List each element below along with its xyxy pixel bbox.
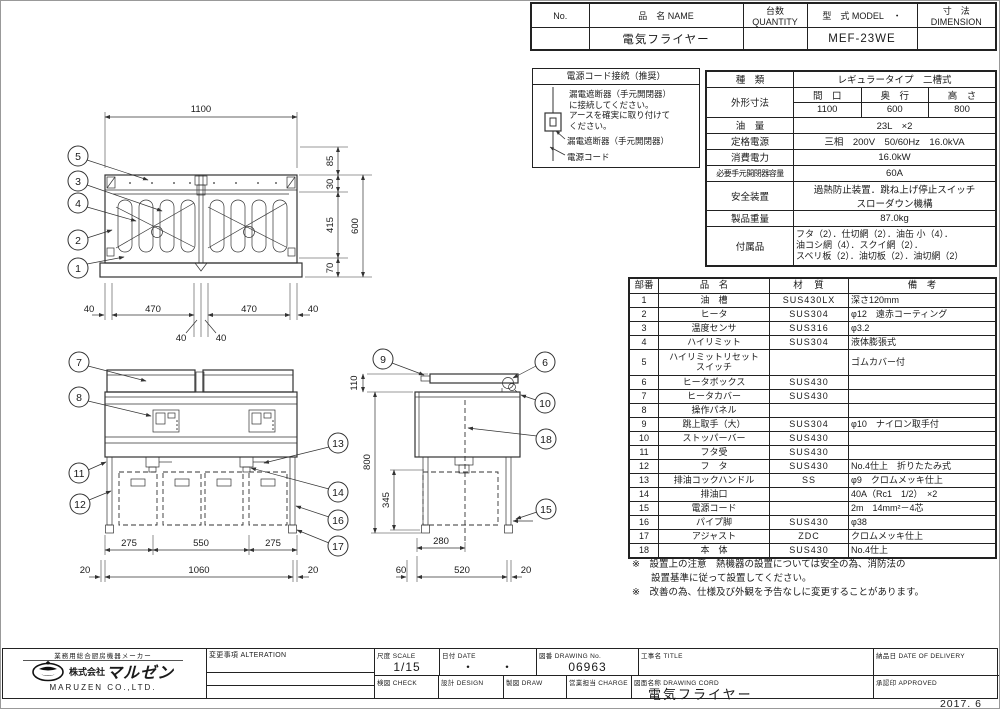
delivery-label: 納品日 DATE OF DELIVERY <box>876 650 965 660</box>
parts-header-remarks: 備 考 <box>849 278 997 294</box>
check-label: 検図 CHECK <box>377 677 417 687</box>
plan-dim-40a: 40 <box>84 304 95 315</box>
svg-text:8: 8 <box>76 392 82 404</box>
product-model: MEF-23WE <box>807 28 917 51</box>
balloon-16: 16 <box>296 506 348 530</box>
plan-dim-85: 85 <box>325 156 336 167</box>
front-dim-20a: 20 <box>80 565 91 576</box>
scale-cell: 尺度 SCALE 1/15 <box>374 649 439 675</box>
plan-dim-415: 415 <box>325 217 336 233</box>
project-title-cell: 工事名 TITLE <box>638 649 873 675</box>
header-col-model: 型 式 MODEL ・ <box>807 3 917 28</box>
charge-label: 営業担当 CHARGE <box>569 677 628 687</box>
approved-label: 承認印 APPROVED <box>876 677 937 687</box>
parts-row-11: 11フタ受SUS430 <box>629 446 996 460</box>
svg-text:4: 4 <box>75 198 81 210</box>
power-cord-title: 電源コード接続（推奨） <box>533 69 699 85</box>
parts-row-14: 14排油口40A（Rc1 1/2） ×2 <box>629 488 996 502</box>
svg-text:18: 18 <box>540 434 552 446</box>
svg-text:17: 17 <box>332 541 344 553</box>
date-value: ・ ・ <box>440 658 536 675</box>
alteration-label: 変更事項 ALTERATION <box>209 650 286 660</box>
plan-dim-70: 70 <box>325 263 336 274</box>
spec-consumption-value: 16.0kW <box>794 149 997 165</box>
company-name-jp: マルゼン <box>106 659 174 683</box>
installation-notes: ※ 設置上の注意 熱機器の設置については安全の為、消防法の 設置基準に従って設置… <box>632 558 997 599</box>
spec-oil-value: 23L ×2 <box>794 117 997 133</box>
spec-dims-col-height: 高 さ <box>929 87 997 102</box>
product-dim <box>917 28 996 51</box>
draw-label: 製図 DRAW <box>506 677 543 687</box>
product-no <box>531 28 589 51</box>
maruzen-logo-icon <box>31 660 65 682</box>
spec-breaker-value: 60A <box>794 165 997 181</box>
balloon-1: 1 <box>68 257 124 278</box>
product-name: 電気フライヤー <box>589 28 743 51</box>
plan-dim-40d: 40 <box>216 333 227 344</box>
spec-dims-col-depth: 奥 行 <box>861 87 929 102</box>
header-col-no: No. <box>531 3 589 28</box>
parts-header-material: 材 質 <box>770 278 849 294</box>
side-dim-110: 110 <box>349 375 360 390</box>
spec-dims-label: 外形寸法 <box>706 87 794 117</box>
balloon-17: 17 <box>297 530 348 556</box>
company-kk: 株式会社 <box>69 665 105 678</box>
alteration-line <box>207 673 374 686</box>
charge-cell: 営業担当 CHARGE <box>566 675 631 698</box>
parts-header-no: 部番 <box>629 278 659 294</box>
balloon-14: 14 <box>251 468 348 502</box>
balloon-8: 8 <box>69 387 151 416</box>
drawing-name-cell: 図面名称 DRAWING CORD 電気フライヤー <box>631 675 873 698</box>
company-name-en: MARUZEN CO.,LTD. <box>3 683 203 692</box>
front-dim-275a: 275 <box>121 538 137 549</box>
note-installation: ※ 設置上の注意 熱機器の設置については安全の為、消防法の 設置基準に従って設置… <box>632 558 997 586</box>
header-col-name: 品 名 NAME <box>589 3 743 28</box>
balloon-12: 12 <box>70 491 111 514</box>
side-dim-520: 520 <box>454 565 470 576</box>
oil-cans-dashed <box>119 472 287 525</box>
approved-cell: 承認印 APPROVED <box>873 675 999 698</box>
parts-row-8: 8操作パネル <box>629 404 996 418</box>
side-view: 110 800 345 280 60 520 20 9 6 <box>349 349 556 582</box>
spec-accessories-label: 付属品 <box>706 226 794 266</box>
svg-text:9: 9 <box>380 354 386 366</box>
parts-row-9: 9跳上取手（大）SUS304φ10 ナイロン取手付 <box>629 418 996 432</box>
svg-text:2: 2 <box>75 235 81 247</box>
drawing-name-value: 電気フライヤー <box>648 684 753 703</box>
design-label: 設計 DESIGN <box>441 677 483 687</box>
date-cell: 日付 DATE ・ ・ <box>439 649 536 675</box>
front-dim-1060: 1060 <box>188 565 209 576</box>
company-block: 業務用総合厨房機器メーカー 株式会社 マルゼン MARUZEN CO.,LTD. <box>3 649 206 697</box>
front-dim-275b: 275 <box>265 538 281 549</box>
front-view: 275 550 275 20 1060 20 7 8 11 12 <box>69 352 348 582</box>
parts-row-7: 7ヒータカバーSUS430 <box>629 390 996 404</box>
spec-consumption-label: 消費電力 <box>706 149 794 165</box>
control-panel-right <box>249 410 275 432</box>
parts-row-4: 4ハイリミットSUS304液体膨張式 <box>629 336 996 350</box>
balloon-13: 13 <box>264 433 348 463</box>
scale-value: 1/15 <box>375 658 439 675</box>
spec-weight-label: 製品重量 <box>706 210 794 226</box>
heater-coils-right <box>208 200 287 252</box>
spec-dims-val-depth: 600 <box>861 102 929 117</box>
plan-dim-40c: 40 <box>176 333 187 344</box>
svg-text:10: 10 <box>539 398 551 410</box>
parts-row-10: 10ストッパーバーSUS430 <box>629 432 996 446</box>
parts-header-name: 品 名 <box>659 278 770 294</box>
plan-dim-470a: 470 <box>145 304 161 315</box>
svg-text:16: 16 <box>332 515 344 527</box>
side-dim-60: 60 <box>396 565 407 576</box>
side-dim-800: 800 <box>362 454 373 470</box>
balloon-18: 18 <box>468 428 556 449</box>
spec-type-label: 種 類 <box>706 71 794 87</box>
parts-row-12: 12フ タSUS430No.4仕上 折りたたみ式 <box>629 460 996 474</box>
spec-oil-label: 油 量 <box>706 117 794 133</box>
svg-text:7: 7 <box>76 357 82 369</box>
spec-power-value: 三相 200V 50/60Hz 16.0kVA <box>794 133 997 149</box>
cord-label: 電源コード <box>567 151 610 163</box>
balloon-10: 10 <box>521 393 555 413</box>
spec-breaker-label: 必要手元開閉器容量 <box>706 165 794 181</box>
balloon-11: 11 <box>69 462 106 483</box>
balloon-6: 6 <box>513 352 555 378</box>
front-dim-550: 550 <box>193 538 209 549</box>
spec-dims-val-height: 800 <box>929 102 997 117</box>
spec-weight-value: 87.0kg <box>794 210 997 226</box>
plan-view: 1100 85 30 415 70 600 40 470 470 40 <box>68 104 372 344</box>
breaker-icon <box>539 87 569 165</box>
svg-text:15: 15 <box>540 504 552 516</box>
design-cell: 設計 DESIGN <box>438 675 503 698</box>
control-panel-left <box>153 410 179 432</box>
balloon-9: 9 <box>373 349 424 375</box>
parts-row-6: 6ヒータボックスSUS430 <box>629 376 996 390</box>
svg-text:14: 14 <box>332 487 344 499</box>
svg-text:3: 3 <box>75 176 81 188</box>
power-cord-instruction: 漏電遮断器（手元開閉器） に接続してください。 アースを確実に取り付けて くださ… <box>569 89 671 132</box>
svg-text:11: 11 <box>74 468 85 480</box>
svg-text:13: 13 <box>332 438 344 450</box>
parts-row-16: 16パイプ脚SUS430φ38 <box>629 516 996 530</box>
balloon-15: 15 <box>516 499 556 519</box>
svg-text:1: 1 <box>75 263 81 275</box>
plan-dim-width: 1100 <box>191 104 211 115</box>
spec-power-label: 定格電源 <box>706 133 794 149</box>
parts-row-2: 2ヒータSUS304φ12 遠赤コーティング <box>629 308 996 322</box>
plan-dim-40b: 40 <box>308 304 319 315</box>
spec-dims-col-width: 間 口 <box>794 87 862 102</box>
draw-cell: 製図 DRAW <box>503 675 566 698</box>
drawing-no-cell: 図番 DRAWING No. 06963 <box>536 649 638 675</box>
note-改善: ※ 改善の為、仕様及び外観を予告なしに変更することがあります。 <box>632 586 997 600</box>
power-cord-box: 電源コード接続（推奨） 漏電遮断器（手元開閉器） に接続してください。 アースを… <box>532 68 700 168</box>
balloon-4: 4 <box>68 193 136 221</box>
spec-safety-value: 過熱防止装置．跳ね上げ停止スイッチ スローダウン機構 <box>794 181 997 210</box>
plan-dim-600: 600 <box>350 218 361 234</box>
product-qty <box>743 28 807 51</box>
front-dim-20b: 20 <box>308 565 319 576</box>
delivery-cell: 納品日 DATE OF DELIVERY <box>873 649 999 675</box>
header-col-dim: 寸 法 DIMENSION <box>917 3 996 28</box>
project-title-label: 工事名 TITLE <box>641 650 683 660</box>
breaker-label: 漏電遮断器（手元開閉器） <box>567 135 669 147</box>
spec-dims-val-width: 1100 <box>794 102 862 117</box>
parts-row-18: 18本 体SUS430No.4仕上 <box>629 544 996 559</box>
check-cell: 検図 CHECK <box>374 675 438 698</box>
alteration-line <box>207 660 374 673</box>
parts-table: 部番 品 名 材 質 備 考 1油 槽SUS430LX深さ120mm 2ヒータS… <box>628 277 997 559</box>
plan-dim-30: 30 <box>325 179 336 190</box>
parts-row-15: 15電源コード2m 14mm²－4芯 <box>629 502 996 516</box>
spec-safety-label: 安全装置 <box>706 181 794 210</box>
alteration-cell: 変更事項 ALTERATION <box>206 649 374 698</box>
heater-coils-left <box>116 200 195 252</box>
title-block: 業務用総合厨房機器メーカー 株式会社 マルゼン MARUZEN CO.,LTD.… <box>2 648 998 699</box>
parts-row-1: 1油 槽SUS430LX深さ120mm <box>629 294 996 308</box>
parts-row-17: 17アジャストZDCクロムメッキ仕上 <box>629 530 996 544</box>
spec-accessories-value: フタ（2）．仕切網（2）．油缶 小（4）． 油コシ網（4）．スクイ網（2）． ス… <box>794 226 997 266</box>
spec-table: 種 類 レギュラータイプ 二槽式 外形寸法 間 口 奥 行 高 さ 1100 6… <box>705 70 997 267</box>
side-dim-20: 20 <box>521 565 532 576</box>
svg-text:6: 6 <box>542 357 548 369</box>
side-dim-345: 345 <box>381 492 392 508</box>
spec-type-value: レギュラータイプ 二槽式 <box>794 71 997 87</box>
svg-text:5: 5 <box>75 151 81 163</box>
parts-row-13: 13排油コックハンドルSSφ9 クロムメッキ仕上 <box>629 474 996 488</box>
issue-date: 2017. 6 <box>890 698 990 710</box>
svg-text:12: 12 <box>74 499 86 511</box>
plan-dim-470b: 470 <box>241 304 257 315</box>
header-table: No. 品 名 NAME 台数 QUANTITY 型 式 MODEL ・ 寸 法… <box>530 2 997 51</box>
parts-row-5: 5ハイリミットリセット スイッチゴムカバー付 <box>629 350 996 376</box>
parts-row-3: 3温度センサSUS316φ3.2 <box>629 322 996 336</box>
side-dim-280: 280 <box>433 536 449 547</box>
drawing-no-value: 06963 <box>537 658 638 675</box>
alteration-line <box>207 686 374 699</box>
header-col-qty: 台数 QUANTITY <box>743 3 807 28</box>
